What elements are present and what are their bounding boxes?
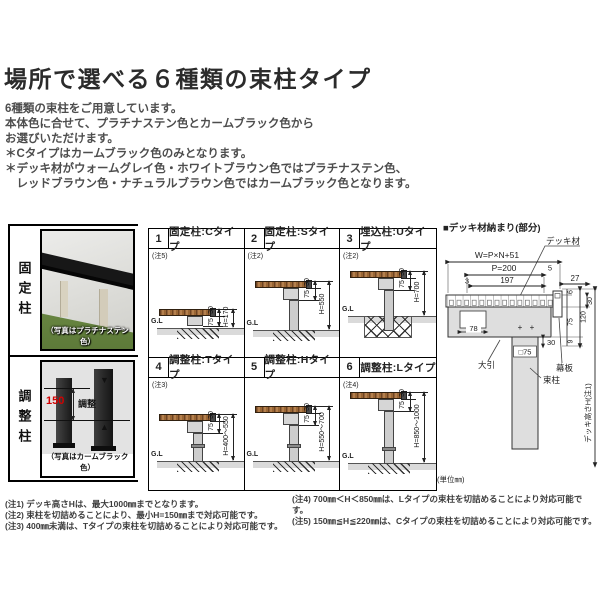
dim-75: 75 — [304, 281, 312, 307]
detail-dim-post: □75 — [519, 348, 532, 357]
joist-label: 大引 — [478, 360, 495, 370]
post-label: 束柱 — [543, 375, 561, 385]
intro-line: 本体色に合せて、プラチナステン色とカームブラック色から — [5, 117, 435, 132]
post-shape — [99, 289, 108, 329]
type-cell-4: 4 調整柱:Tタイプ (注3) 30 75 H=400〜550 G.L — [148, 357, 245, 492]
height-dimension-arrow — [329, 281, 330, 329]
note-line: (注2) 束柱を切詰めることにより、最小H=150㎜まで対応可能です。 — [5, 510, 293, 521]
cell-header: 2 固定柱:Sタイプ — [245, 229, 340, 249]
fixed-post-label: 固定柱 — [11, 226, 37, 355]
notes-right: (注4) 700㎜＜H＜850㎜は、Lタイプの束柱を切詰めることにより対応可能で… — [292, 494, 598, 527]
joist-shape — [378, 278, 394, 290]
deck-detail-drawing: ■デッキ材納まり(部分) デッキ材 W=P×N+51 P=200 5 3 197… — [440, 213, 600, 483]
cell-title: 調整柱:Hタイプ — [265, 358, 340, 377]
detail-dim-27: 27 — [571, 274, 580, 283]
cell-title: 調整柱:Lタイプ — [360, 358, 436, 377]
cell-diagram: 30 75 H=700 G.L — [340, 249, 436, 357]
adjuster-shape — [287, 444, 301, 448]
ground-hatch — [273, 461, 315, 472]
cell-diagram: 30 75 H=550 G.L — [245, 249, 340, 357]
cell-title: 固定柱:Cタイプ — [169, 229, 244, 248]
dim-h: H=400〜550 — [223, 414, 231, 458]
dim-75: 75 — [399, 271, 407, 297]
detail-dim-120: 120 — [581, 311, 588, 323]
cell-number: 1 — [149, 229, 169, 248]
note-line: (注3) 400㎜未満は、Tタイプの束柱を切詰めることにより対応可能です。 — [5, 521, 293, 532]
post-shape — [384, 411, 394, 464]
intro-line: レッドブラウン色・ナチュラルブラウン色ではカームブラック色となります。 — [5, 177, 435, 192]
adjust-post-label: 調整柱 — [11, 357, 37, 480]
adjuster-shape — [191, 444, 205, 448]
cell-diagram: 30 75 H=850〜1000 G.L — [340, 378, 436, 491]
type-cell-5: 5 調整柱:Hタイプ 30 75 H=550〜700 G.L — [244, 357, 341, 492]
dimension-arrow — [410, 271, 411, 290]
intro-line: 6種類の束柱をご用意しています。 — [5, 102, 435, 117]
deck-board-shape — [159, 309, 211, 316]
cell-number: 2 — [245, 229, 265, 248]
cell-header: 6 調整柱:Lタイプ — [340, 358, 436, 378]
dim-75: 75 — [304, 406, 312, 432]
dimension-line — [44, 420, 130, 421]
deck-board-shape — [255, 281, 307, 288]
deck-height-label: デッキ高さH(注1) — [583, 383, 593, 443]
detail-title: ■デッキ材納まり(部分) — [443, 222, 541, 234]
dimension-arrow — [219, 309, 220, 326]
deck-board-shape — [159, 414, 211, 421]
detail-dim-197: 197 — [500, 276, 514, 285]
height-dimension-arrow — [424, 271, 425, 315]
dim-h: H=550〜700 — [319, 410, 327, 454]
dim-75: 75 — [208, 414, 216, 440]
cell-diagram: 30 75 H=550〜700 G.L — [245, 378, 340, 491]
deck-material-label: デッキ材 — [546, 236, 581, 246]
type-cell-6: 6 調整柱:Lタイプ (注4) 30 75 H=850〜1000 G.L — [339, 357, 437, 492]
intro-line: お選びいただけます。 — [5, 132, 435, 147]
cell-title: 調整柱:Tタイプ — [169, 358, 244, 377]
detail-dim-30-joist: 30 — [547, 338, 555, 347]
screw-mark: + — [530, 323, 535, 332]
note-line: (注1) デッキ高さHは、最大1000㎜までとなります。 — [5, 499, 293, 510]
ground-hatch — [368, 463, 410, 474]
catalog-page: 場所で選べる６種類の束柱タイプ 6種類の束柱をご用意しています。 本体色に合せて… — [0, 0, 600, 600]
detail-dim-w: W=P×N+51 — [475, 250, 519, 260]
detail-dim-3: 3 — [465, 277, 469, 286]
unit-note: (単位㎜) — [437, 474, 465, 485]
detail-dim-30-top: 30 — [587, 297, 594, 305]
joist-shape — [378, 399, 394, 411]
fascia-shape — [553, 291, 562, 317]
ground-hatch — [177, 461, 219, 472]
dimension-arrow — [315, 406, 316, 425]
dimension-arrow — [73, 389, 74, 420]
adjust-range-label: 調整 — [78, 397, 96, 410]
leader-line — [559, 318, 562, 363]
leader-line — [488, 340, 500, 361]
joist-shape — [187, 316, 203, 326]
note-line: (注4) 700㎜＜H＜850㎜は、Lタイプの束柱を切詰めることにより対応可能で… — [292, 494, 598, 516]
height-dimension-arrow — [233, 414, 234, 460]
detail-dim-p: P=200 — [492, 263, 517, 273]
cell-header: 1 固定柱:Cタイプ — [149, 229, 244, 249]
dim-h: H=170 — [223, 295, 231, 339]
height-dimension-arrow — [233, 309, 234, 327]
dimension-arrow — [219, 414, 220, 433]
page-title: 場所で選べる６種類の束柱タイプ — [4, 60, 372, 94]
deck-board-shape — [350, 392, 402, 399]
arrow-down-icon: ▼ — [100, 375, 109, 385]
photo-column: 固定柱 （写真はプラチナステン色） 調整柱 — [8, 224, 138, 482]
dim-h: H=700 — [414, 270, 422, 314]
gl-label: G.L — [151, 318, 163, 325]
cell-title: 固定柱:Sタイプ — [265, 229, 340, 248]
fascia-label: 幕板 — [556, 363, 574, 373]
cell-number: 4 — [149, 358, 169, 377]
height-dimension-arrow — [424, 392, 425, 462]
deck-board-shape — [350, 271, 402, 278]
cell-diagram: 30 75 H=170 G.L — [149, 249, 244, 357]
dimension-line — [44, 388, 90, 389]
dim-h: H=550 — [319, 282, 327, 326]
post-shape — [289, 300, 299, 331]
post-shape — [60, 281, 68, 317]
fixed-photo-caption: （写真はプラチナステン色） — [42, 325, 133, 347]
type-cell-2: 2 固定柱:Sタイプ (注2) 30 75 H=550 G.L — [244, 228, 341, 358]
cell-header: 4 調整柱:Tタイプ — [149, 358, 244, 378]
dim-75: 75 — [399, 392, 407, 418]
dimension-arrow — [315, 281, 316, 300]
joist-shape — [283, 413, 299, 425]
gl-label: G.L — [247, 320, 259, 327]
detail-dim-75: 75 — [568, 318, 575, 326]
post-shape — [384, 290, 394, 331]
adjust-post-photo: 150 調整 ▼ ▲ （写真はカームブラック色） — [40, 360, 135, 478]
joist-shape — [283, 288, 299, 300]
gl-label: G.L — [342, 306, 354, 313]
detail-dim-9: 9 — [568, 339, 575, 343]
fixed-post-panel: 固定柱 （写真はプラチナステン色） — [10, 224, 138, 355]
adjust-photo-caption: （写真はカームブラック色） — [42, 451, 133, 473]
notes-left: (注1) デッキ高さHは、最大1000㎜までとなります。 (注2) 束柱を切詰め… — [5, 499, 293, 532]
intro-line: ＊Cタイプはカームブラック色のみとなります。 — [5, 147, 435, 162]
screw-mark: + — [518, 323, 523, 332]
cell-header: 5 調整柱:Hタイプ — [245, 358, 340, 378]
cell-number: 6 — [340, 358, 360, 377]
adjust-post-panel: 調整柱 150 調整 ▼ ▲ （写真はカームブラック色） — [10, 355, 138, 482]
height-dimension-arrow — [329, 406, 330, 460]
intro-line: ＊デッキ材がウォームグレイ色・ホワイトブラウン色ではプラチナステン色、 — [5, 162, 435, 177]
adjust-range-value: 150 — [46, 395, 64, 407]
deck-boards-pattern — [446, 295, 553, 307]
type-cell-3: 3 埋込柱:Uタイプ (注2) 30 75 H=700 G.L — [339, 228, 437, 358]
detail-dim-78: 78 — [469, 324, 477, 333]
detail-dim-5: 5 — [548, 264, 552, 273]
gl-label: G.L — [151, 451, 163, 458]
dim-h: H=850〜1000 — [414, 404, 422, 448]
gl-label: G.L — [342, 453, 354, 460]
intro-paragraph: 6種類の束柱をご用意しています。 本体色に合せて、プラチナステン色とカームブラッ… — [5, 102, 435, 192]
gl-label: G.L — [247, 451, 259, 458]
adjuster-shape — [382, 447, 396, 451]
dim-75: 75 — [208, 309, 216, 335]
cell-number: 3 — [340, 229, 360, 248]
detail-dim-6: 6 — [568, 290, 575, 294]
fixed-post-photo: （写真はプラチナステン色） — [40, 229, 135, 351]
joist-shape — [187, 421, 203, 433]
cell-header: 3 埋込柱:Uタイプ — [340, 229, 436, 249]
dimension-arrow — [410, 392, 411, 411]
cell-diagram: 30 75 H=400〜550 G.L — [149, 378, 244, 491]
note-line: (注5) 150㎜≦H≦220㎜は、Cタイプの束柱を切詰めることにより対応可能で… — [292, 516, 598, 527]
type-cell-1: 1 固定柱:Cタイプ (注5) 30 75 H=170 G.L — [148, 228, 245, 358]
base-plate-shape — [53, 443, 75, 448]
cell-title: 埋込柱:Uタイプ — [360, 229, 436, 248]
ground-hatch — [273, 330, 315, 341]
cell-number: 5 — [245, 358, 265, 377]
deck-board-shape — [255, 406, 307, 413]
arrow-up-icon: ▲ — [100, 422, 109, 432]
